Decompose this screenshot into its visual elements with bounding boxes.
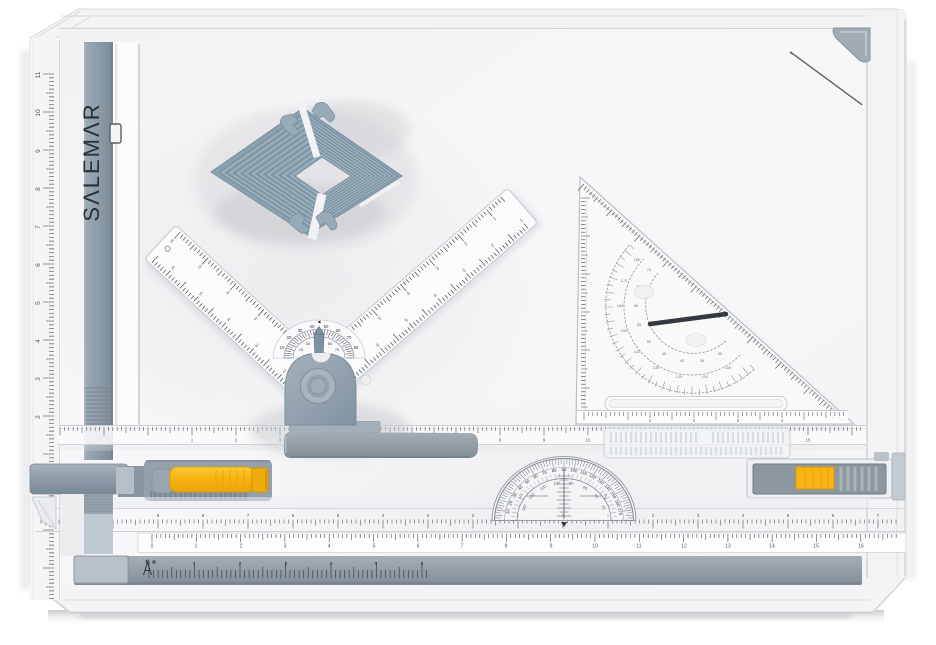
svg-text:10: 10 — [280, 345, 285, 350]
svg-text:15: 15 — [805, 438, 811, 443]
svg-text:40: 40 — [680, 358, 685, 363]
svg-text:30: 30 — [306, 341, 311, 346]
svg-text:1: 1 — [195, 544, 198, 550]
svg-text:6: 6 — [35, 263, 42, 267]
svg-text:2: 2 — [35, 415, 42, 419]
svg-text:80: 80 — [354, 345, 359, 350]
svg-text:SΛLEMΛR: SΛLEMΛR — [79, 102, 104, 221]
svg-text:15: 15 — [813, 544, 819, 550]
svg-text:8: 8 — [35, 187, 42, 191]
svg-text:6: 6 — [421, 561, 424, 567]
svg-text:60: 60 — [634, 303, 639, 308]
svg-text:140: 140 — [634, 349, 641, 354]
svg-text:11: 11 — [35, 71, 42, 78]
svg-text:35: 35 — [700, 358, 705, 363]
svg-text:9: 9 — [550, 544, 553, 550]
svg-text:4: 4 — [330, 561, 333, 567]
svg-text:12: 12 — [681, 544, 687, 550]
svg-text:11: 11 — [636, 544, 641, 550]
svg-text:5: 5 — [35, 301, 42, 305]
svg-text:7: 7 — [461, 544, 464, 550]
svg-text:9: 9 — [35, 149, 42, 153]
svg-text:20: 20 — [287, 335, 292, 340]
svg-text:15: 15 — [299, 347, 304, 352]
svg-text:130: 130 — [653, 365, 660, 370]
svg-text:2: 2 — [240, 544, 243, 550]
svg-text:16: 16 — [858, 544, 864, 550]
svg-text:70: 70 — [347, 335, 352, 340]
svg-text:120: 120 — [676, 374, 683, 379]
svg-text:6: 6 — [417, 544, 420, 550]
svg-text:10: 10 — [585, 438, 591, 443]
svg-text:2: 2 — [519, 495, 522, 501]
svg-text:10: 10 — [35, 109, 42, 117]
svg-text:110: 110 — [702, 374, 709, 379]
svg-text:1: 1 — [193, 561, 196, 567]
svg-text:2: 2 — [604, 495, 607, 501]
svg-text:60: 60 — [328, 341, 333, 346]
svg-text:0: 0 — [151, 544, 154, 550]
svg-text:150: 150 — [621, 328, 628, 333]
svg-text:50: 50 — [324, 324, 329, 329]
svg-text:55: 55 — [637, 322, 642, 327]
svg-text:30: 30 — [718, 351, 723, 356]
svg-text:10: 10 — [592, 544, 598, 550]
svg-text:13: 13 — [725, 544, 731, 550]
svg-text:8: 8 — [505, 544, 508, 550]
svg-text:100: 100 — [725, 365, 732, 370]
svg-text:45: 45 — [662, 351, 667, 356]
svg-text:3: 3 — [285, 561, 288, 567]
svg-text:4: 4 — [35, 339, 42, 343]
svg-text:5: 5 — [375, 561, 378, 567]
svg-text:2: 2 — [239, 561, 242, 567]
svg-text:7: 7 — [35, 225, 42, 229]
svg-text:3: 3 — [35, 377, 42, 381]
svg-text:170: 170 — [621, 278, 628, 283]
svg-text:3: 3 — [284, 544, 287, 550]
svg-text:30: 30 — [298, 328, 303, 333]
svg-text:5: 5 — [373, 544, 376, 550]
svg-text:50: 50 — [647, 339, 652, 344]
svg-text:80: 80 — [569, 481, 574, 486]
svg-text:180: 180 — [634, 257, 641, 262]
svg-text:14: 14 — [769, 544, 775, 550]
svg-text:70: 70 — [647, 267, 652, 272]
svg-text:75: 75 — [335, 347, 340, 352]
svg-text:160: 160 — [617, 303, 624, 308]
svg-text:4: 4 — [328, 544, 331, 550]
svg-text:40: 40 — [310, 324, 315, 329]
svg-text:60: 60 — [336, 328, 341, 333]
